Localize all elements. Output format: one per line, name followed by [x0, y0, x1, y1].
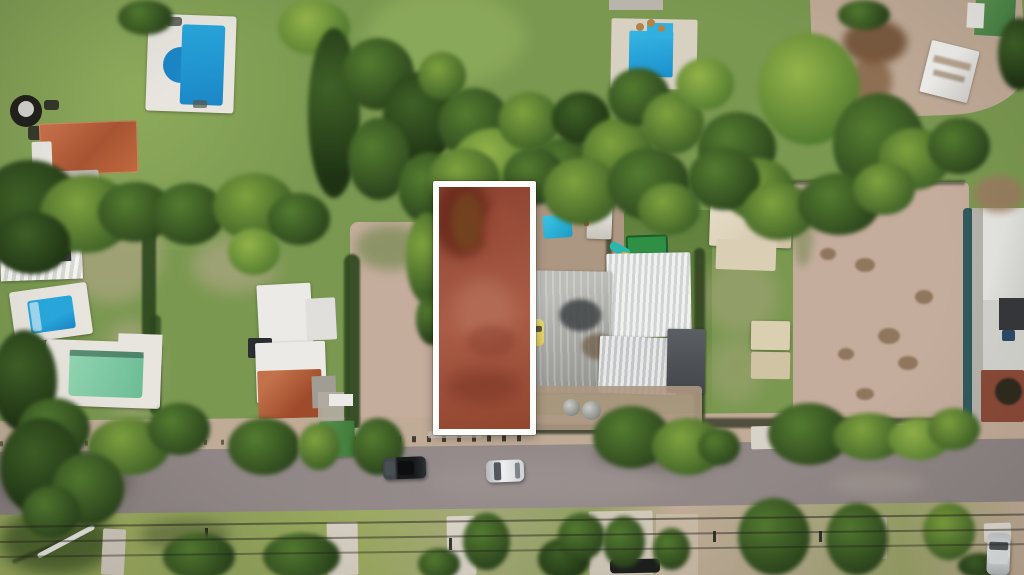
dirt-spot	[856, 388, 874, 400]
tree	[228, 418, 300, 475]
aerial-photo	[0, 0, 1024, 575]
dirt-spot	[915, 290, 933, 304]
canopy	[751, 352, 790, 380]
cream-roof-building	[715, 239, 776, 271]
car-roof	[989, 551, 1008, 565]
tree	[148, 403, 210, 455]
tree	[826, 503, 888, 575]
tree	[738, 498, 810, 575]
dark-suv	[383, 456, 427, 479]
silver-sedan	[486, 459, 525, 482]
tree	[228, 228, 280, 275]
tree	[698, 428, 740, 465]
canopy	[751, 321, 791, 351]
tree	[298, 423, 340, 470]
metal-roof	[606, 252, 691, 337]
rust-streak	[933, 69, 966, 83]
water-tank	[582, 401, 601, 420]
shed-white-roof	[966, 3, 984, 29]
building-edge	[609, 0, 663, 10]
tree	[603, 516, 645, 568]
lounge-chair	[636, 23, 644, 31]
white-roof	[329, 394, 353, 406]
concrete-path	[101, 528, 126, 575]
red-building	[981, 370, 1024, 422]
tree-over-roof	[995, 378, 1022, 405]
road-wear	[540, 478, 690, 500]
fire-pit-center	[18, 101, 34, 117]
tree	[676, 58, 734, 110]
tree	[928, 118, 990, 174]
car-roof	[398, 461, 414, 476]
highlighted-vacant-lot	[433, 181, 536, 435]
dirt-spot	[855, 258, 875, 272]
water-tank	[563, 399, 580, 416]
swimming-pool	[180, 24, 226, 105]
rooftop-object	[1002, 330, 1015, 341]
white-roof-building	[983, 208, 1024, 376]
dirt-spot	[820, 248, 836, 260]
slate-roof	[666, 329, 705, 394]
truck-bed	[385, 461, 395, 475]
tree	[22, 486, 80, 538]
dirt-spot	[878, 328, 900, 344]
rust-streak	[933, 55, 972, 71]
tree	[928, 408, 980, 450]
patio-furniture	[193, 100, 207, 108]
driveway-car	[986, 533, 1010, 575]
lot-soil	[467, 325, 515, 357]
patio-chair	[44, 100, 59, 110]
windshield	[494, 462, 502, 480]
roof-hatch	[999, 298, 1024, 330]
dirt-patch	[974, 176, 1024, 212]
tree	[268, 193, 330, 245]
lot-soil-dark	[447, 369, 519, 403]
lot-soil	[483, 205, 519, 253]
utility-pole	[449, 538, 452, 550]
tree	[838, 0, 890, 30]
rear-window	[515, 462, 521, 478]
tree	[118, 0, 173, 35]
pool-steps	[29, 302, 42, 332]
dirt-spot	[898, 356, 918, 370]
tree	[853, 163, 915, 215]
swimming-pool	[27, 295, 76, 334]
road-wear	[830, 472, 925, 496]
pool-edge	[70, 350, 144, 359]
green-pool	[68, 350, 144, 399]
dirt-spot	[838, 348, 854, 360]
white-roof	[305, 297, 337, 341]
lot-tree-shade	[451, 193, 483, 251]
lounge-chair	[658, 25, 665, 32]
lounge-chair	[647, 19, 655, 27]
